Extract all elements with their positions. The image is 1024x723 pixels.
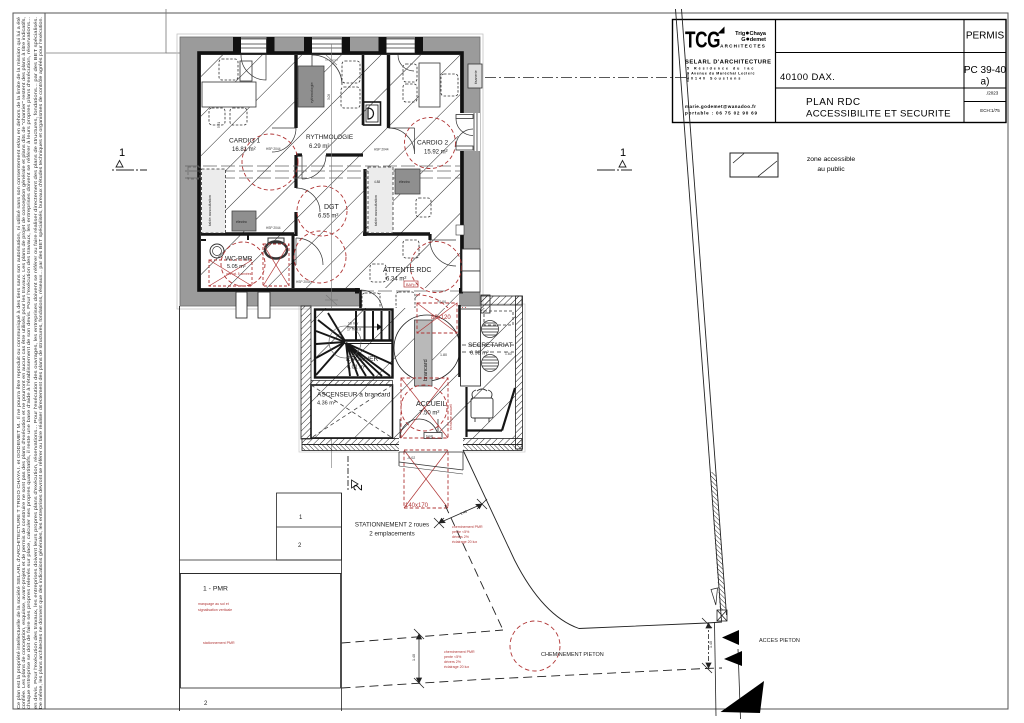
svg-text:chaque entreprise se doit de f: chaque entreprise se doit de faire ses p…: [26, 17, 31, 709]
svg-text:7.50 m²: 7.50 m²: [419, 411, 439, 417]
svg-text:signalisation verticale: signalisation verticale: [198, 608, 232, 612]
svg-text:HSP 2044: HSP 2044: [374, 148, 389, 152]
svg-text:au public: au public: [817, 166, 845, 173]
svg-text:+0.00: +0.00: [437, 300, 446, 304]
svg-text:cheminement PMR: cheminement PMR: [452, 525, 483, 529]
svg-text:SELARL D'ARCHITECTURE: SELARL D'ARCHITECTURE: [685, 60, 772, 66]
svg-text:électro: électro: [236, 220, 247, 224]
svg-text:5 Résidence du lac: 5 Résidence du lac: [687, 67, 755, 71]
svg-text:BAFp: BAFp: [406, 283, 416, 287]
svg-text:4.36 m²: 4.36 m²: [317, 401, 336, 407]
svg-text:CHEMINEMENT PIETON: CHEMINEMENT PIETON: [541, 652, 604, 658]
svg-text:-0.02: -0.02: [407, 456, 415, 460]
svg-text:zone accessible: zone accessible: [807, 156, 856, 163]
svg-text:éclairage 20 lux: éclairage 20 lux: [444, 665, 469, 669]
svg-text:table auscultation: table auscultation: [373, 195, 378, 226]
svg-text:HSP 2044: HSP 2044: [266, 226, 281, 230]
svg-text:1: 1: [119, 147, 125, 159]
svg-text:ECH:1/75: ECH:1/75: [980, 108, 1000, 113]
svg-text:pente <5%: pente <5%: [444, 655, 462, 659]
svg-text:stationnement PMR: stationnement PMR: [203, 641, 235, 645]
svg-text:ACCESSIBILITE ET SECURITE: ACCESSIBILITE ET SECURITE: [806, 109, 951, 120]
svg-text:pente <5%: pente <5%: [452, 530, 470, 534]
svg-text:2: 2: [351, 484, 365, 491]
svg-text:1.80: 1.80: [440, 353, 447, 357]
svg-text:5.51: 5.51: [217, 122, 221, 128]
svg-text:SECRETARIAT: SECRETARIAT: [468, 342, 513, 349]
svg-text:6.55 m²: 6.55 m²: [318, 214, 338, 220]
svg-text:HSP 2044: HSP 2044: [296, 280, 311, 284]
svg-text:marquage au sol et: marquage au sol et: [198, 602, 229, 606]
svg-text:5.05 m²: 5.05 m²: [227, 264, 246, 270]
svg-text:ESCALIER: ESCALIER: [346, 356, 378, 363]
svg-text:9 Avenue du Maréchal Leclerc: 9 Avenue du Maréchal Leclerc: [687, 72, 755, 76]
svg-text:a): a): [981, 77, 990, 88]
svg-text:ARCHITECTES: ARCHITECTES: [720, 44, 766, 49]
svg-text:table auscultation: table auscultation: [207, 195, 212, 226]
svg-text:6.34 m²: 6.34 m²: [386, 277, 406, 283]
svg-text:40100 DAX.: 40100 DAX.: [780, 72, 835, 83]
svg-text:ATTENTE RDC: ATTENTE RDC: [383, 267, 431, 274]
svg-text:1.40: 1.40: [412, 654, 416, 661]
svg-text:marie.godemet@wanadoo.fr: marie.godemet@wanadoo.fr: [685, 104, 756, 109]
svg-text:16.81 m²: 16.81 m²: [232, 147, 256, 153]
svg-text:1.40: 1.40: [709, 641, 713, 648]
svg-text:RYTHMOLOGIE: RYTHMOLOGIE: [306, 134, 353, 141]
svg-text:2 emplacements: 2 emplacements: [369, 531, 414, 538]
svg-text:dévers 2%: dévers 2%: [452, 535, 470, 539]
svg-text:1: 1: [299, 515, 303, 521]
svg-text:rythmologie: rythmologie: [309, 82, 314, 103]
svg-text:CARDIO 2: CARDIO 2: [417, 140, 448, 147]
svg-text:80x120: 80x120: [431, 315, 451, 321]
svg-text:aire lat. 5 années: aire lat. 5 années: [226, 272, 252, 276]
svg-text:Trig●Chaya: Trig●Chaya: [735, 30, 767, 37]
svg-text:40140 Soustons: 40140 Soustons: [687, 77, 742, 81]
svg-text:CARDIO 1: CARDIO 1: [229, 138, 260, 145]
svg-text:2: 2: [298, 543, 302, 549]
svg-text:PC 39-40: PC 39-40: [964, 65, 1007, 76]
svg-text:ASCENSEUR à brancard: ASCENSEUR à brancard: [317, 392, 391, 399]
svg-text:tisanerie: tisanerie: [474, 70, 478, 84]
svg-text:140x170: 140x170: [405, 503, 429, 509]
svg-text:TCG: TCG: [685, 27, 720, 53]
svg-text:électro: électro: [399, 180, 410, 184]
svg-text:1.60: 1.60: [505, 352, 512, 356]
svg-text:1 - PMR: 1 - PMR: [203, 586, 228, 593]
svg-text:15.92 m²: 15.92 m²: [424, 150, 448, 156]
svg-text:ACCES PIETON: ACCES PIETON: [759, 638, 800, 644]
svg-text:STATIONNEMENT 2 roues: STATIONNEMENT 2 roues: [355, 522, 429, 529]
svg-text:6.01 m²: 6.01 m²: [347, 365, 366, 371]
svg-text:G●demet: G●demet: [741, 36, 766, 43]
svg-text:ACCUEIL: ACCUEIL: [416, 401, 446, 408]
svg-text:6.29 m²: 6.29 m²: [309, 144, 329, 150]
svg-text:1: 1: [620, 147, 626, 159]
svg-text:./2023: ./2023: [986, 91, 999, 96]
svg-text:portable : 06 75 02 90 69: portable : 06 75 02 90 69: [685, 111, 758, 116]
svg-text:3.09: 3.09: [327, 94, 331, 100]
svg-text:4.88: 4.88: [374, 180, 380, 184]
svg-text:2: 2: [204, 701, 208, 707]
svg-text:dévers 2%: dévers 2%: [444, 660, 462, 664]
svg-text:16 mar: 16 mar: [348, 322, 359, 326]
svg-text:PLAN RDC: PLAN RDC: [806, 97, 861, 108]
svg-text:17 h 28.8: 17 h 28.8: [347, 328, 361, 332]
svg-text:WC-PMR: WC-PMR: [225, 256, 253, 263]
svg-text:échange accueil: échange accueil: [449, 404, 453, 430]
svg-text:6.98 m²: 6.98 m²: [470, 351, 489, 357]
svg-text:PERMIS: PERMIS: [966, 31, 1005, 42]
svg-text:éclairage 20 lux: éclairage 20 lux: [452, 540, 477, 544]
svg-text:De même, les plans architectes: De même, les plans architectes ne donnen…: [38, 17, 43, 709]
svg-text:cheminement PMR: cheminement PMR: [444, 650, 475, 654]
svg-text:HSP 2044: HSP 2044: [266, 147, 281, 151]
svg-text:1.40: 1.40: [460, 509, 468, 516]
